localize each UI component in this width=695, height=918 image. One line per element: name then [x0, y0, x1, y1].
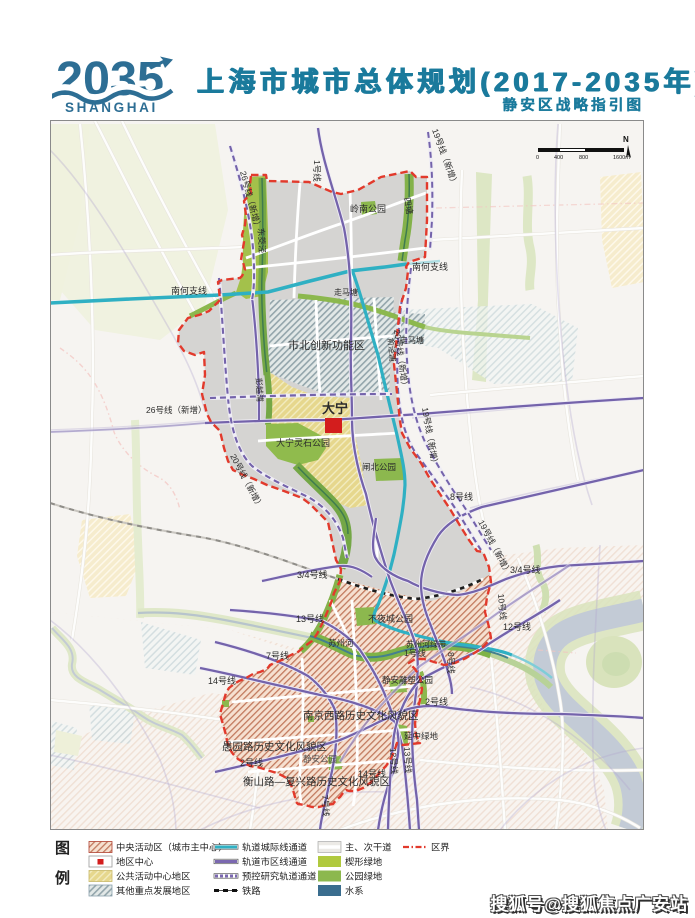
svg-text:2号线: 2号线: [240, 757, 263, 768]
svg-text:愚园路历史文化风貌区: 愚园路历史文化风貌区: [222, 740, 327, 753]
svg-text:静安公园: 静安公园: [303, 754, 337, 764]
svg-text:1号线: 1号线: [312, 160, 322, 182]
svg-text:图: 图: [55, 840, 70, 857]
svg-text:800: 800: [579, 155, 588, 161]
svg-text:13号线: 13号线: [296, 613, 324, 624]
svg-text:岭南公园: 岭南公园: [350, 203, 386, 214]
svg-text:1600m: 1600m: [613, 155, 630, 161]
svg-text:14号线: 14号线: [208, 675, 236, 686]
svg-text:东茭泾: 东茭泾: [256, 228, 267, 254]
svg-text:26号线（新增）: 26号线（新增）: [146, 405, 206, 415]
svg-text:1号线: 1号线: [404, 648, 426, 658]
svg-text:区界: 区界: [431, 843, 450, 853]
svg-text:2号线: 2号线: [425, 696, 448, 707]
svg-text:地区中心: 地区中心: [116, 856, 153, 867]
svg-text:不夜城公园: 不夜城公园: [368, 613, 413, 624]
svg-text:7号线: 7号线: [266, 650, 289, 661]
svg-text:静安雕塑公园: 静安雕塑公园: [382, 675, 433, 685]
svg-text:3/4号线: 3/4号线: [510, 564, 541, 575]
svg-text:走马塘: 走马塘: [334, 287, 358, 297]
svg-text:大宁灵石公园: 大宁灵石公园: [276, 437, 330, 448]
svg-text:彭越浦: 彭越浦: [254, 378, 265, 402]
svg-text:公共活动中心地区: 公共活动中心地区: [116, 871, 190, 882]
svg-text:公园绿地: 公园绿地: [345, 871, 382, 882]
svg-text:大宁: 大宁: [322, 401, 348, 416]
svg-text:8号线: 8号线: [450, 491, 473, 502]
svg-text:苏州河: 苏州河: [328, 638, 354, 648]
svg-text:400: 400: [554, 155, 563, 161]
svg-text:12号线: 12号线: [503, 621, 531, 632]
svg-text:衡山路—复兴路历史文化风貌区: 衡山路—复兴路历史文化风貌区: [243, 775, 390, 788]
svg-text:延中绿地: 延中绿地: [404, 731, 439, 741]
svg-text:南京西路历史文化风貌区: 南京西路历史文化风貌区: [303, 709, 419, 722]
svg-text:8号线: 8号线: [446, 652, 456, 674]
svg-text:7号线: 7号线: [320, 795, 331, 818]
svg-text:3/4号线: 3/4号线: [297, 569, 328, 580]
svg-text:N: N: [623, 135, 629, 144]
svg-text:0: 0: [536, 155, 539, 161]
svg-text:主、次干道: 主、次干道: [345, 842, 392, 853]
svg-text:楔形绿地: 楔形绿地: [345, 856, 382, 867]
svg-text:预控研究轨道通道: 预控研究轨道通道: [242, 871, 316, 882]
svg-text:中央活动区（城市主中心）: 中央活动区（城市主中心）: [116, 842, 228, 853]
svg-text:轨道城际线通道: 轨道城际线通道: [242, 842, 307, 853]
svg-text:市北创新功能区: 市北创新功能区: [288, 338, 365, 352]
svg-text:闸北公园: 闸北公园: [362, 462, 396, 472]
svg-text:例: 例: [55, 869, 70, 887]
svg-text:13号线: 13号线: [402, 747, 413, 774]
svg-text:南何支线: 南何支线: [412, 261, 448, 272]
svg-text:12号线: 12号线: [388, 748, 399, 775]
svg-text:轨道市区线通道: 轨道市区线通道: [242, 856, 307, 867]
svg-text:南何支线: 南何支线: [171, 285, 207, 296]
